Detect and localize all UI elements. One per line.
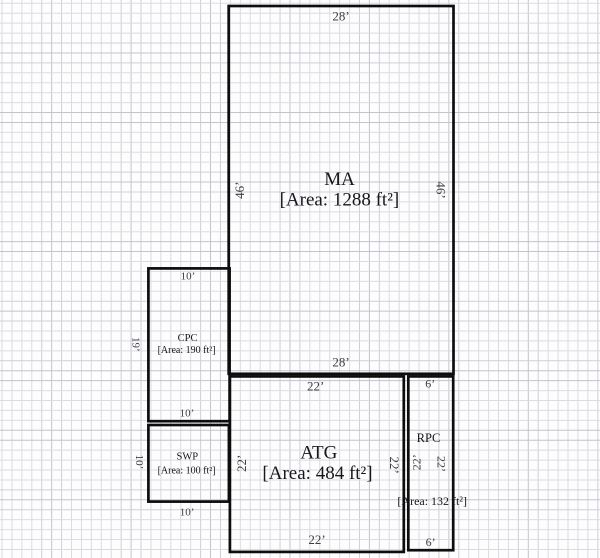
svg-text:46’: 46’	[232, 182, 247, 199]
svg-text:MA: MA	[324, 169, 355, 190]
svg-text:22’: 22’	[435, 456, 449, 472]
svg-text:22’: 22’	[234, 455, 249, 472]
svg-text:22’: 22’	[307, 378, 324, 393]
svg-text:10’: 10’	[180, 407, 195, 419]
svg-text:22’: 22’	[308, 532, 325, 547]
svg-text:28’: 28’	[332, 355, 349, 370]
svg-text:RPC: RPC	[417, 431, 441, 445]
svg-text:6’: 6’	[426, 535, 436, 549]
svg-text:46’: 46’	[434, 181, 449, 198]
svg-text:10’: 10’	[133, 455, 145, 470]
svg-text:10’: 10’	[181, 270, 196, 282]
svg-text:[Area: 190 ft²]: [Area: 190 ft²]	[158, 345, 216, 356]
svg-text:[Area: 132 ft²]: [Area: 132 ft²]	[397, 494, 467, 508]
svg-text:CPC: CPC	[178, 333, 198, 344]
svg-text:22’: 22’	[387, 457, 402, 474]
svg-text:ATG: ATG	[300, 443, 337, 464]
svg-text:[Area: 100 ft²]: [Area: 100 ft²]	[158, 465, 216, 476]
svg-text:28’: 28’	[332, 8, 349, 23]
svg-text:22’: 22’	[410, 454, 424, 470]
svg-text:SWP: SWP	[177, 452, 199, 463]
svg-text:6’: 6’	[425, 377, 435, 391]
svg-text:19’: 19’	[130, 337, 142, 352]
svg-text:[Area: 1288 ft²]: [Area: 1288 ft²]	[280, 190, 400, 211]
svg-text:10’: 10’	[180, 507, 195, 519]
svg-text:[Area: 484 ft²]: [Area: 484 ft²]	[262, 463, 372, 484]
